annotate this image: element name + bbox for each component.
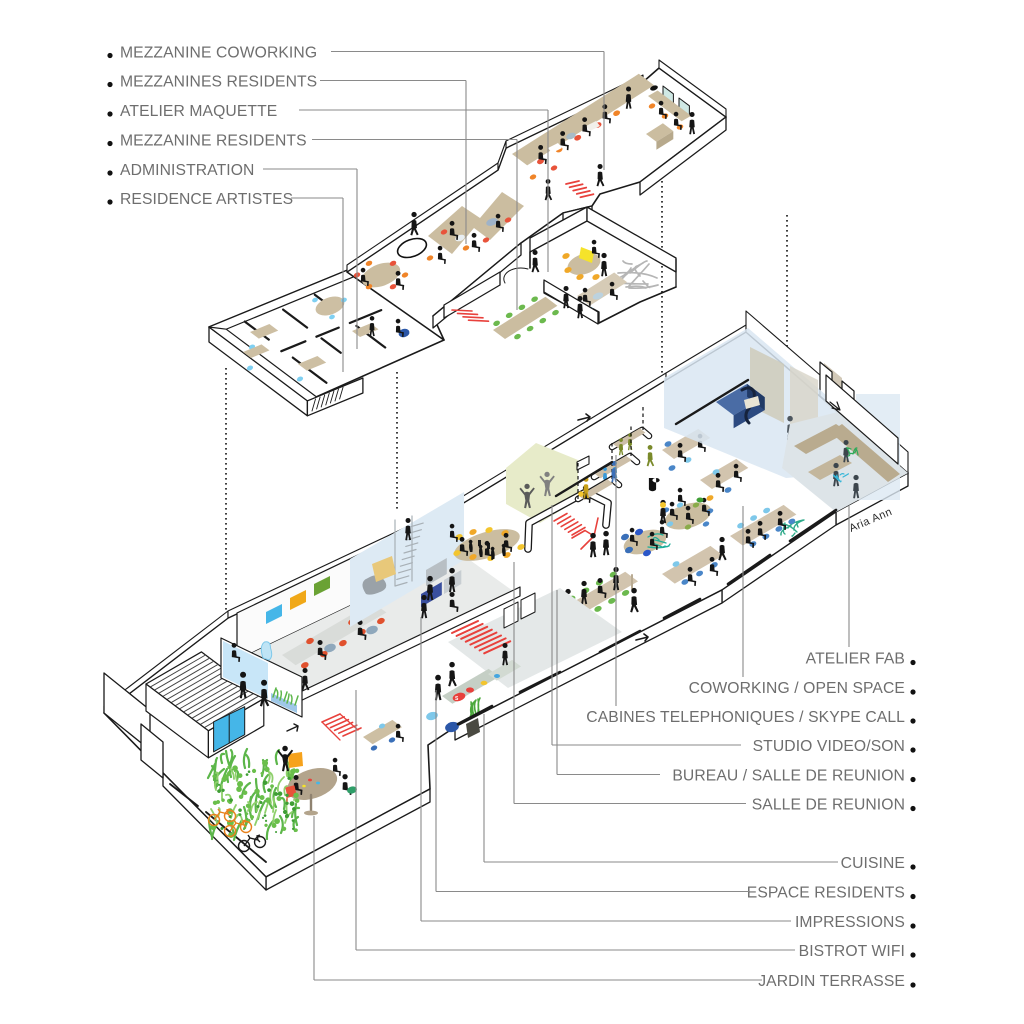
svg-text:JARDIN TERRASSE: JARDIN TERRASSE [758, 973, 905, 990]
svg-text:STUDIO VIDEO/SON: STUDIO VIDEO/SON [753, 738, 905, 755]
svg-text:CUISINE: CUISINE [841, 855, 905, 872]
svg-text:ESPACE RESIDENTS: ESPACE RESIDENTS [747, 885, 905, 902]
svg-text:MEZZANINES RESIDENTS: MEZZANINES RESIDENTS [120, 74, 317, 91]
svg-text:ATELIER FAB: ATELIER FAB [806, 651, 905, 668]
svg-text:COWORKING / OPEN SPACE: COWORKING / OPEN SPACE [689, 680, 905, 697]
svg-text:ATELIER MAQUETTE: ATELIER MAQUETTE [120, 103, 277, 120]
svg-text:IMPRESSIONS: IMPRESSIONS [795, 914, 905, 931]
svg-text:SALLE DE REUNION: SALLE DE REUNION [752, 797, 905, 814]
svg-text:MEZZANINE RESIDENTS: MEZZANINE RESIDENTS [120, 133, 307, 150]
svg-text:BISTROT WIFI: BISTROT WIFI [799, 943, 905, 960]
svg-text:BUREAU / SALLE DE REUNION: BUREAU / SALLE DE REUNION [672, 768, 905, 785]
svg-text:MEZZANINE COWORKING: MEZZANINE COWORKING [120, 45, 317, 62]
svg-text:ADMINISTRATION: ADMINISTRATION [120, 162, 254, 179]
svg-text:RESIDENCE ARTISTES: RESIDENCE ARTISTES [120, 191, 293, 208]
svg-text:CABINES TELEPHONIQUES / SKYPE: CABINES TELEPHONIQUES / SKYPE CALL [586, 709, 905, 726]
